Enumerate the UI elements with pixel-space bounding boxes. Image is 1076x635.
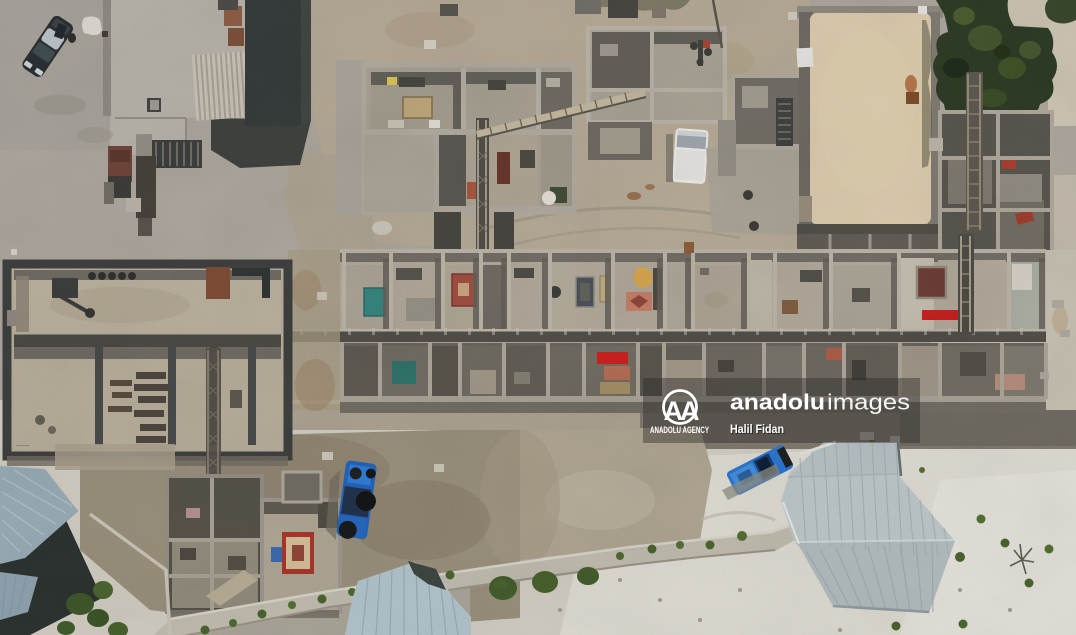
svg-text:anadolu: anadolu: [730, 390, 825, 415]
svg-text:AA: AA: [664, 396, 699, 426]
svg-text:Halil Fidan: Halil Fidan: [730, 424, 784, 436]
svg-text:images: images: [827, 390, 910, 415]
svg-text:ANADOLU AGENCY: ANADOLU AGENCY: [650, 425, 709, 436]
